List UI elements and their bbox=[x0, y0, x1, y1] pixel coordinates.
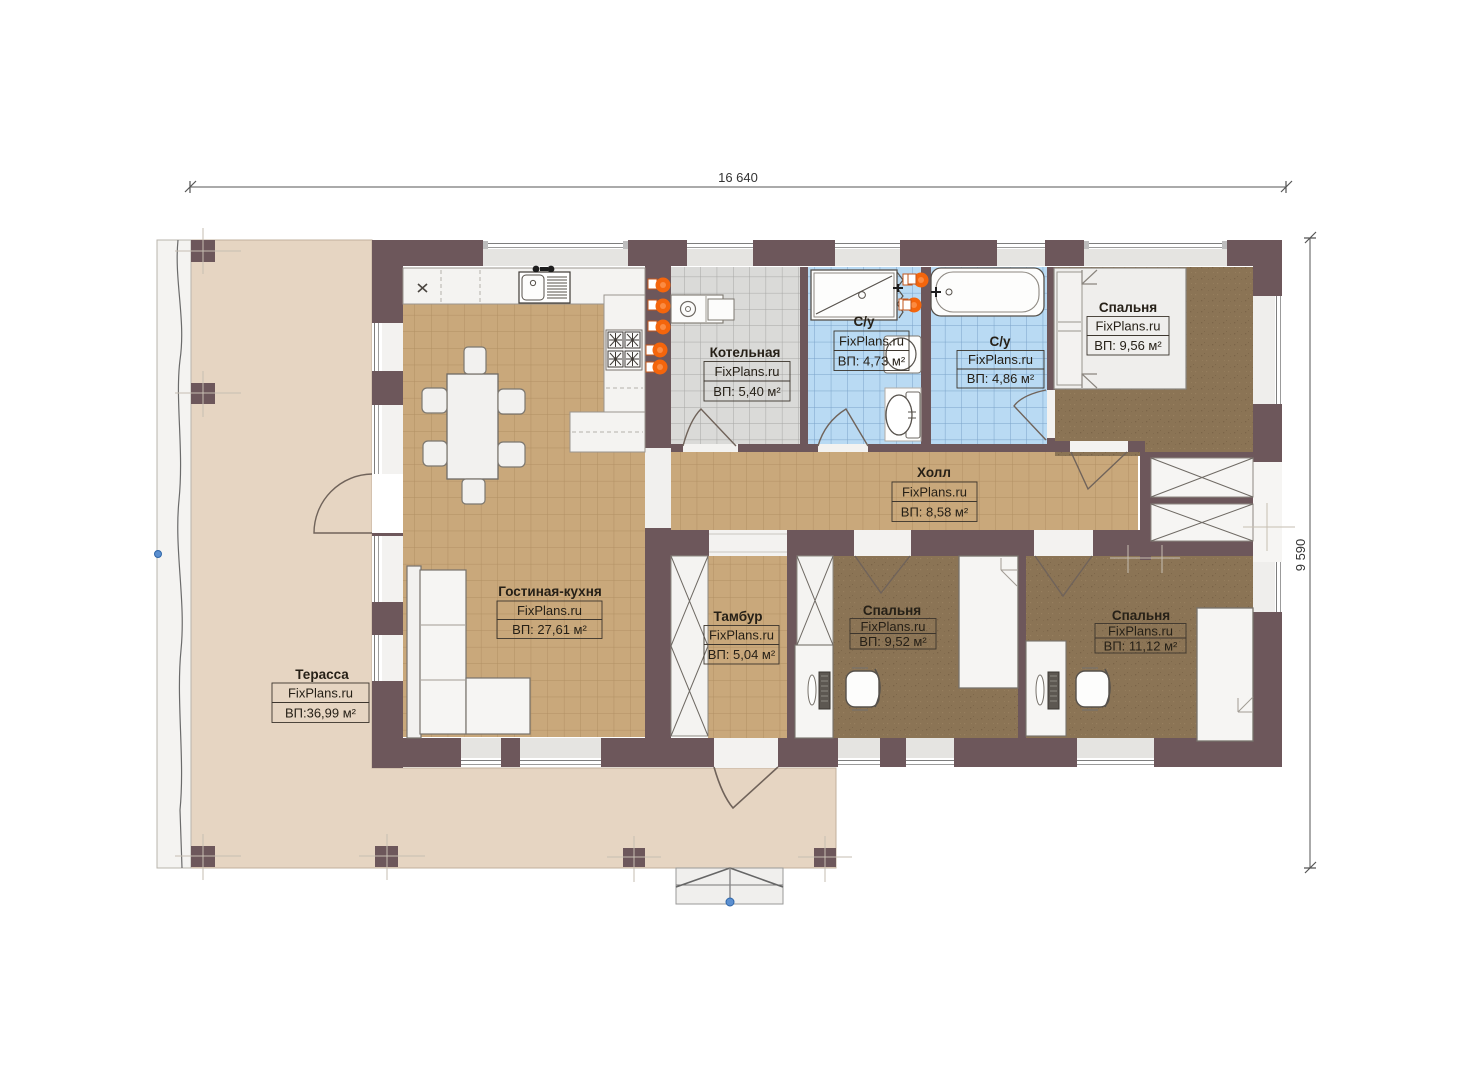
svg-text:ВП: 9,56 м²: ВП: 9,56 м² bbox=[1094, 338, 1162, 353]
svg-text:FixPlans.ru: FixPlans.ru bbox=[517, 603, 582, 618]
svg-text:ВП:36,99 м²: ВП:36,99 м² bbox=[285, 706, 357, 721]
svg-text:FixPlans.ru: FixPlans.ru bbox=[1095, 319, 1160, 334]
svg-text:ВП: 4,73 м²: ВП: 4,73 м² bbox=[838, 354, 906, 369]
svg-text:Тамбур: Тамбур bbox=[714, 609, 763, 624]
svg-text:9 590: 9 590 bbox=[1293, 539, 1308, 572]
svg-text:FixPlans.ru: FixPlans.ru bbox=[902, 485, 967, 500]
svg-text:С/у: С/у bbox=[989, 334, 1011, 349]
svg-text:16 640: 16 640 bbox=[718, 170, 758, 185]
svg-text:FixPlans.ru: FixPlans.ru bbox=[288, 686, 353, 701]
svg-text:ВП: 5,40 м²: ВП: 5,40 м² bbox=[713, 384, 781, 399]
svg-text:Гостиная-кухня: Гостиная-кухня bbox=[498, 584, 601, 599]
svg-text:ВП: 8,58 м²: ВП: 8,58 м² bbox=[901, 505, 969, 520]
svg-text:Спальня: Спальня bbox=[1112, 608, 1170, 623]
svg-text:FixPlans.ru: FixPlans.ru bbox=[709, 628, 774, 643]
svg-text:FixPlans.ru: FixPlans.ru bbox=[1108, 624, 1173, 639]
svg-text:ВП: 27,61 м²: ВП: 27,61 м² bbox=[512, 622, 587, 637]
svg-text:ВП: 4,86 м²: ВП: 4,86 м² bbox=[967, 371, 1035, 386]
svg-text:С/у: С/у bbox=[853, 314, 875, 329]
svg-text:Котельная: Котельная bbox=[710, 345, 781, 360]
svg-text:Спальня: Спальня bbox=[1099, 300, 1157, 315]
svg-text:FixPlans.ru: FixPlans.ru bbox=[714, 364, 779, 379]
svg-text:Холл: Холл bbox=[917, 465, 951, 480]
svg-text:FixPlans.ru: FixPlans.ru bbox=[860, 619, 925, 634]
svg-text:ВП: 9,52 м²: ВП: 9,52 м² bbox=[859, 634, 927, 649]
svg-text:Спальня: Спальня bbox=[863, 603, 921, 618]
svg-text:Терасса: Терасса bbox=[295, 667, 349, 682]
svg-text:ВП: 11,12 м²: ВП: 11,12 м² bbox=[1104, 639, 1178, 654]
svg-text:FixPlans.ru: FixPlans.ru bbox=[839, 334, 904, 349]
svg-text:ВП: 5,04 м²: ВП: 5,04 м² bbox=[708, 647, 776, 662]
svg-text:FixPlans.ru: FixPlans.ru bbox=[968, 352, 1033, 367]
